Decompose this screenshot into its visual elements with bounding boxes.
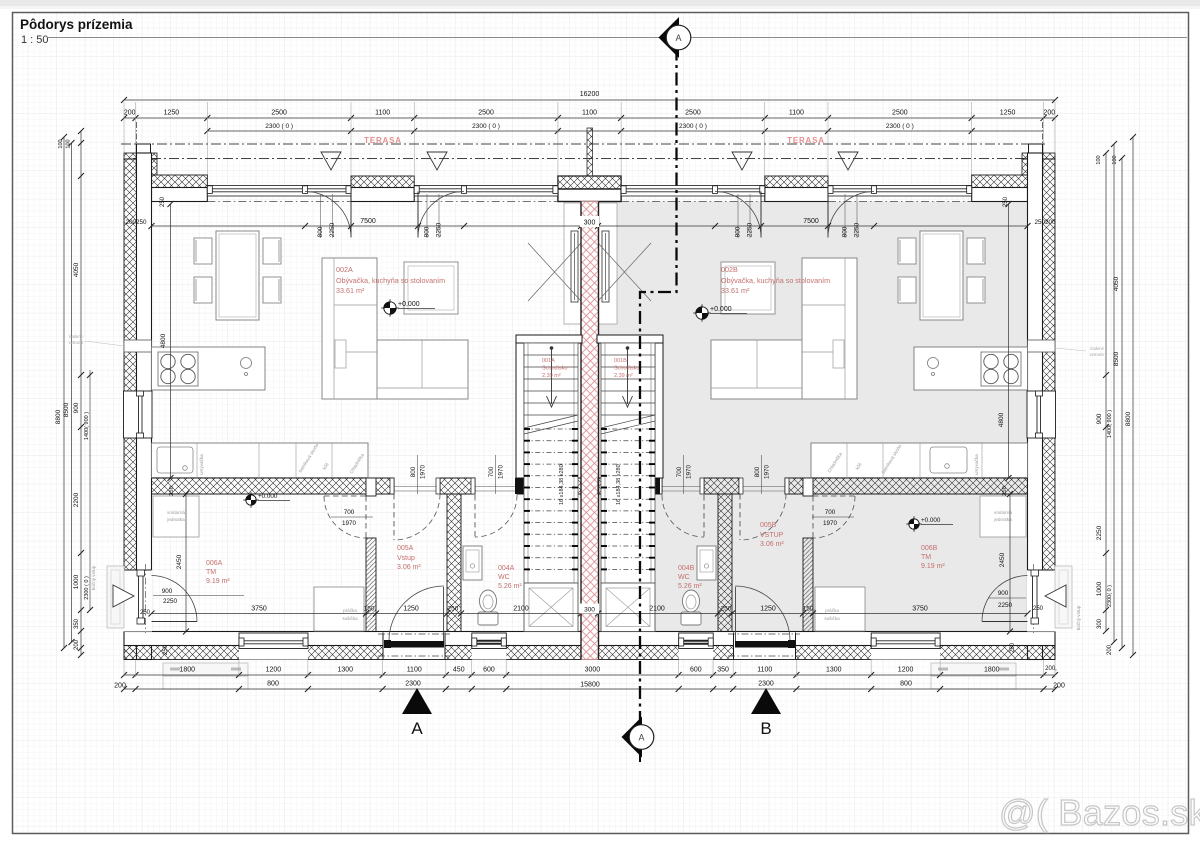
svg-text:250: 250 bbox=[160, 196, 166, 207]
svg-text:sušička: sušička bbox=[342, 616, 358, 621]
svg-text:2300: 2300 bbox=[405, 681, 421, 688]
svg-text:2100: 2100 bbox=[649, 606, 665, 613]
svg-text:250: 250 bbox=[163, 644, 169, 655]
svg-text:1000: 1000 bbox=[1096, 581, 1103, 596]
svg-text:1100: 1100 bbox=[375, 110, 390, 117]
svg-text:B: B bbox=[760, 719, 771, 738]
svg-text:2300 ( 0 ): 2300 ( 0 ) bbox=[472, 123, 500, 130]
svg-text:Vstup: Vstup bbox=[397, 555, 415, 562]
svg-text:5.26 m²: 5.26 m² bbox=[678, 583, 702, 590]
svg-text:004A: 004A bbox=[498, 565, 515, 572]
svg-text:33.61 m²: 33.61 m² bbox=[721, 286, 750, 295]
svg-text:001A: 001A bbox=[542, 358, 555, 364]
svg-text:2500: 2500 bbox=[271, 110, 287, 117]
svg-text:200: 200 bbox=[1053, 683, 1065, 690]
svg-text:200,: 200, bbox=[1045, 666, 1057, 672]
svg-text:A: A bbox=[675, 33, 681, 43]
svg-text:4800: 4800 bbox=[998, 412, 1005, 427]
svg-text:1970: 1970 bbox=[342, 520, 357, 527]
svg-text:riadené: riadené bbox=[1090, 346, 1105, 351]
svg-text:2300( 0 ): 2300( 0 ) bbox=[1107, 585, 1113, 607]
svg-text:1800: 1800 bbox=[984, 667, 1000, 674]
svg-text:250: 250 bbox=[721, 606, 732, 613]
svg-text:900: 900 bbox=[73, 402, 80, 413]
svg-text:1970: 1970 bbox=[823, 520, 838, 527]
svg-text:2250: 2250 bbox=[854, 222, 861, 237]
svg-text:2250: 2250 bbox=[163, 598, 178, 605]
svg-text:2300 ( 0 ): 2300 ( 0 ) bbox=[84, 576, 90, 600]
svg-text:700: 700 bbox=[825, 509, 836, 516]
svg-text:jednotka: jednotka bbox=[993, 517, 1012, 522]
svg-text:8500: 8500 bbox=[1113, 351, 1120, 366]
svg-text:2250: 2250 bbox=[1096, 525, 1103, 540]
svg-text:006B: 006B bbox=[921, 545, 938, 552]
svg-text:A: A bbox=[411, 719, 423, 738]
svg-text:4050: 4050 bbox=[1113, 276, 1120, 291]
svg-text:2500: 2500 bbox=[685, 110, 701, 117]
svg-text:16 x184,38 x280: 16 x184,38 x280 bbox=[616, 464, 622, 505]
svg-text:1000: 1000 bbox=[73, 574, 80, 589]
svg-text:WC: WC bbox=[498, 574, 510, 581]
svg-text:+0.000: +0.000 bbox=[258, 493, 278, 500]
svg-text:3750: 3750 bbox=[251, 606, 267, 613]
svg-text:200: 200 bbox=[124, 110, 136, 117]
svg-text:100: 100 bbox=[58, 139, 64, 148]
svg-text:1250: 1250 bbox=[1000, 110, 1016, 117]
svg-text:4050: 4050 bbox=[73, 262, 80, 277]
svg-text:1100: 1100 bbox=[757, 667, 772, 674]
svg-text:A: A bbox=[638, 733, 644, 743]
svg-text:1400( 900 ): 1400( 900 ) bbox=[1107, 410, 1113, 438]
svg-text:8800: 8800 bbox=[1125, 411, 1132, 426]
svg-text:vetranie: vetranie bbox=[69, 340, 85, 345]
svg-text:8500: 8500 bbox=[63, 402, 70, 417]
svg-text:800: 800 bbox=[842, 226, 849, 237]
svg-text:TM: TM bbox=[206, 569, 216, 576]
svg-text:9.19 m²: 9.19 m² bbox=[921, 563, 945, 570]
svg-text:1100: 1100 bbox=[789, 110, 804, 117]
svg-text:umývačka: umývačka bbox=[199, 454, 204, 475]
svg-text:+0.000: +0.000 bbox=[921, 517, 941, 524]
svg-text:8800: 8800 bbox=[55, 409, 62, 424]
svg-text:900: 900 bbox=[1096, 413, 1103, 424]
svg-text:002B: 002B bbox=[721, 265, 738, 274]
svg-text:200: 200 bbox=[114, 683, 126, 690]
svg-text:1300: 1300 bbox=[826, 667, 842, 674]
svg-text:300: 300 bbox=[584, 220, 596, 227]
svg-text:2100: 2100 bbox=[513, 606, 529, 613]
svg-text:100: 100 bbox=[1096, 155, 1102, 164]
svg-text:1250: 1250 bbox=[164, 110, 180, 117]
svg-text:15800: 15800 bbox=[580, 682, 600, 689]
svg-text:2500: 2500 bbox=[892, 110, 908, 117]
svg-text:800: 800 bbox=[410, 466, 417, 477]
svg-text:2250: 2250 bbox=[747, 222, 754, 237]
svg-text:005A: 005A bbox=[397, 545, 414, 552]
svg-text:Schodisko: Schodisko bbox=[542, 366, 567, 372]
svg-text:2250: 2250 bbox=[998, 602, 1013, 609]
svg-text:250: 250 bbox=[1010, 642, 1016, 653]
svg-text:100: 100 bbox=[1112, 155, 1118, 164]
svg-text:900: 900 bbox=[162, 588, 173, 595]
svg-text:2200: 2200 bbox=[73, 492, 80, 507]
svg-text:bočný vstup: bočný vstup bbox=[1076, 605, 1081, 630]
svg-text:sušička: sušička bbox=[824, 616, 840, 621]
svg-text:@( Bazos.sk: @( Bazos.sk bbox=[999, 792, 1200, 833]
svg-text:001B: 001B bbox=[614, 358, 627, 364]
svg-text:800: 800 bbox=[735, 226, 742, 237]
svg-text:3.06 m²: 3.06 m² bbox=[760, 541, 784, 548]
svg-text:1300: 1300 bbox=[337, 667, 353, 674]
svg-text:005B: 005B bbox=[760, 522, 777, 529]
svg-text:5.26 m²: 5.26 m² bbox=[498, 583, 522, 590]
svg-text:TERASA: TERASA bbox=[364, 136, 402, 145]
svg-text:3.06 m²: 3.06 m² bbox=[397, 564, 421, 571]
svg-text:3750: 3750 bbox=[912, 606, 928, 613]
svg-text:Pôdorys prízemia: Pôdorys prízemia bbox=[20, 17, 133, 32]
svg-text:006A: 006A bbox=[206, 560, 223, 567]
svg-text:250: 250 bbox=[140, 610, 151, 616]
svg-text:250: 250 bbox=[1033, 606, 1044, 612]
svg-text:2300 ( 0 ): 2300 ( 0 ) bbox=[886, 123, 914, 130]
svg-text:800: 800 bbox=[900, 681, 912, 688]
svg-text:450: 450 bbox=[453, 667, 465, 674]
svg-text:1400( 900 ): 1400( 900 ) bbox=[84, 412, 90, 440]
svg-text:Obývačka, kuchyňa so stolovaní: Obývačka, kuchyňa so stolovaním bbox=[721, 276, 830, 285]
svg-text:bočný vstup: bočný vstup bbox=[91, 565, 96, 590]
svg-text:1100: 1100 bbox=[582, 110, 597, 117]
svg-text:200: 200 bbox=[1107, 644, 1113, 655]
svg-text:250: 250 bbox=[1002, 486, 1008, 496]
svg-text:TERASA: TERASA bbox=[787, 136, 825, 145]
svg-text:1250: 1250 bbox=[403, 606, 419, 613]
svg-text:800: 800 bbox=[267, 681, 279, 688]
svg-text:1100: 1100 bbox=[407, 667, 422, 674]
svg-text:16200: 16200 bbox=[580, 91, 600, 98]
svg-text:1200: 1200 bbox=[898, 667, 914, 674]
svg-text:vnútorná: vnútorná bbox=[994, 510, 1012, 515]
svg-text:004B: 004B bbox=[678, 565, 695, 572]
svg-text:7500: 7500 bbox=[803, 218, 819, 225]
svg-text:1970: 1970 bbox=[686, 465, 693, 480]
svg-text:2250: 2250 bbox=[436, 222, 443, 237]
svg-text:600: 600 bbox=[690, 667, 702, 674]
svg-text:350: 350 bbox=[717, 667, 729, 674]
svg-text:800: 800 bbox=[317, 226, 324, 237]
svg-text:700: 700 bbox=[488, 466, 495, 477]
svg-text:2450: 2450 bbox=[999, 552, 1006, 567]
svg-text:VSTUP: VSTUP bbox=[760, 532, 784, 539]
svg-text:Obývačka, kuchyňa so stolovaní: Obývačka, kuchyňa so stolovaním bbox=[336, 276, 445, 285]
svg-text:WC: WC bbox=[678, 574, 690, 581]
svg-text:1970: 1970 bbox=[764, 465, 771, 480]
svg-text:800: 800 bbox=[754, 466, 761, 477]
svg-text:1800: 1800 bbox=[179, 667, 195, 674]
svg-text:2300 ( 0 ): 2300 ( 0 ) bbox=[265, 123, 293, 130]
svg-text:200: 200 bbox=[1043, 110, 1055, 117]
svg-text:9.19 m²: 9.19 m² bbox=[206, 578, 230, 585]
svg-text:1250: 1250 bbox=[760, 606, 776, 613]
svg-text:100: 100 bbox=[66, 139, 72, 148]
svg-text:+0.000: +0.000 bbox=[398, 301, 420, 308]
svg-text:700: 700 bbox=[344, 509, 355, 516]
svg-text:800: 800 bbox=[424, 226, 431, 237]
svg-text:práčka: práčka bbox=[825, 608, 839, 613]
svg-text:jednotka: jednotka bbox=[166, 517, 185, 522]
svg-text:Schodisko: Schodisko bbox=[614, 366, 639, 372]
svg-text:200: 200 bbox=[74, 639, 80, 650]
svg-text:umývačka: umývačka bbox=[974, 454, 979, 475]
svg-text:1970: 1970 bbox=[498, 465, 505, 480]
svg-text:4800: 4800 bbox=[160, 333, 167, 348]
svg-text:150.: 150. bbox=[364, 606, 377, 613]
svg-text:3000: 3000 bbox=[585, 667, 601, 674]
svg-text:002A: 002A bbox=[336, 265, 353, 274]
svg-text:700: 700 bbox=[676, 466, 683, 477]
svg-text:33.61 m²: 33.61 m² bbox=[336, 286, 365, 295]
svg-text:300: 300 bbox=[584, 607, 595, 614]
svg-text:250: 250 bbox=[1003, 196, 1009, 207]
svg-text:2300: 2300 bbox=[758, 681, 774, 688]
svg-text:2.39 m²: 2.39 m² bbox=[614, 373, 633, 379]
svg-text:250: 250 bbox=[448, 606, 459, 613]
svg-text:16 x184,38 x280: 16 x184,38 x280 bbox=[559, 464, 565, 505]
svg-text:7500: 7500 bbox=[360, 218, 376, 225]
svg-text:vetranie: vetranie bbox=[1090, 352, 1106, 357]
svg-text:riadené: riadené bbox=[69, 334, 84, 339]
svg-text:2.39 m²: 2.39 m² bbox=[542, 373, 561, 379]
svg-text:1970: 1970 bbox=[420, 465, 427, 480]
svg-text:600: 600 bbox=[483, 667, 495, 674]
svg-text:2450: 2450 bbox=[176, 554, 183, 569]
svg-text:1200: 1200 bbox=[266, 667, 282, 674]
svg-text:+0.000: +0.000 bbox=[710, 306, 732, 313]
svg-text:2500: 2500 bbox=[478, 110, 494, 117]
svg-text:200250: 200250 bbox=[125, 219, 147, 226]
svg-text:2300 ( 0 ): 2300 ( 0 ) bbox=[679, 123, 707, 130]
svg-text:350: 350 bbox=[74, 618, 80, 629]
svg-text:TM: TM bbox=[921, 554, 931, 561]
svg-text:250200: 250200 bbox=[1034, 219, 1056, 226]
svg-text:1 : 50: 1 : 50 bbox=[21, 34, 49, 46]
svg-text:300: 300 bbox=[1097, 618, 1103, 629]
svg-text:250: 250 bbox=[169, 486, 175, 496]
svg-text:900: 900 bbox=[998, 590, 1009, 597]
svg-text:150.: 150. bbox=[803, 606, 816, 613]
svg-text:práčka: práčka bbox=[343, 608, 357, 613]
svg-text:vnútorná: vnútorná bbox=[167, 510, 185, 515]
svg-text:2250: 2250 bbox=[329, 222, 336, 237]
